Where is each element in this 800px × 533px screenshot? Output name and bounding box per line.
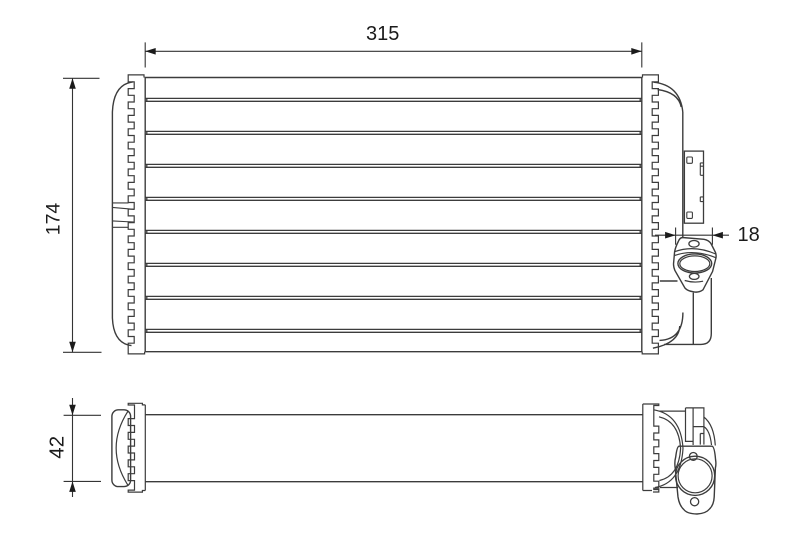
svg-text:315: 315 (366, 23, 399, 45)
svg-text:18: 18 (738, 224, 760, 246)
svg-text:174: 174 (43, 203, 65, 236)
svg-text:42: 42 (46, 436, 69, 459)
